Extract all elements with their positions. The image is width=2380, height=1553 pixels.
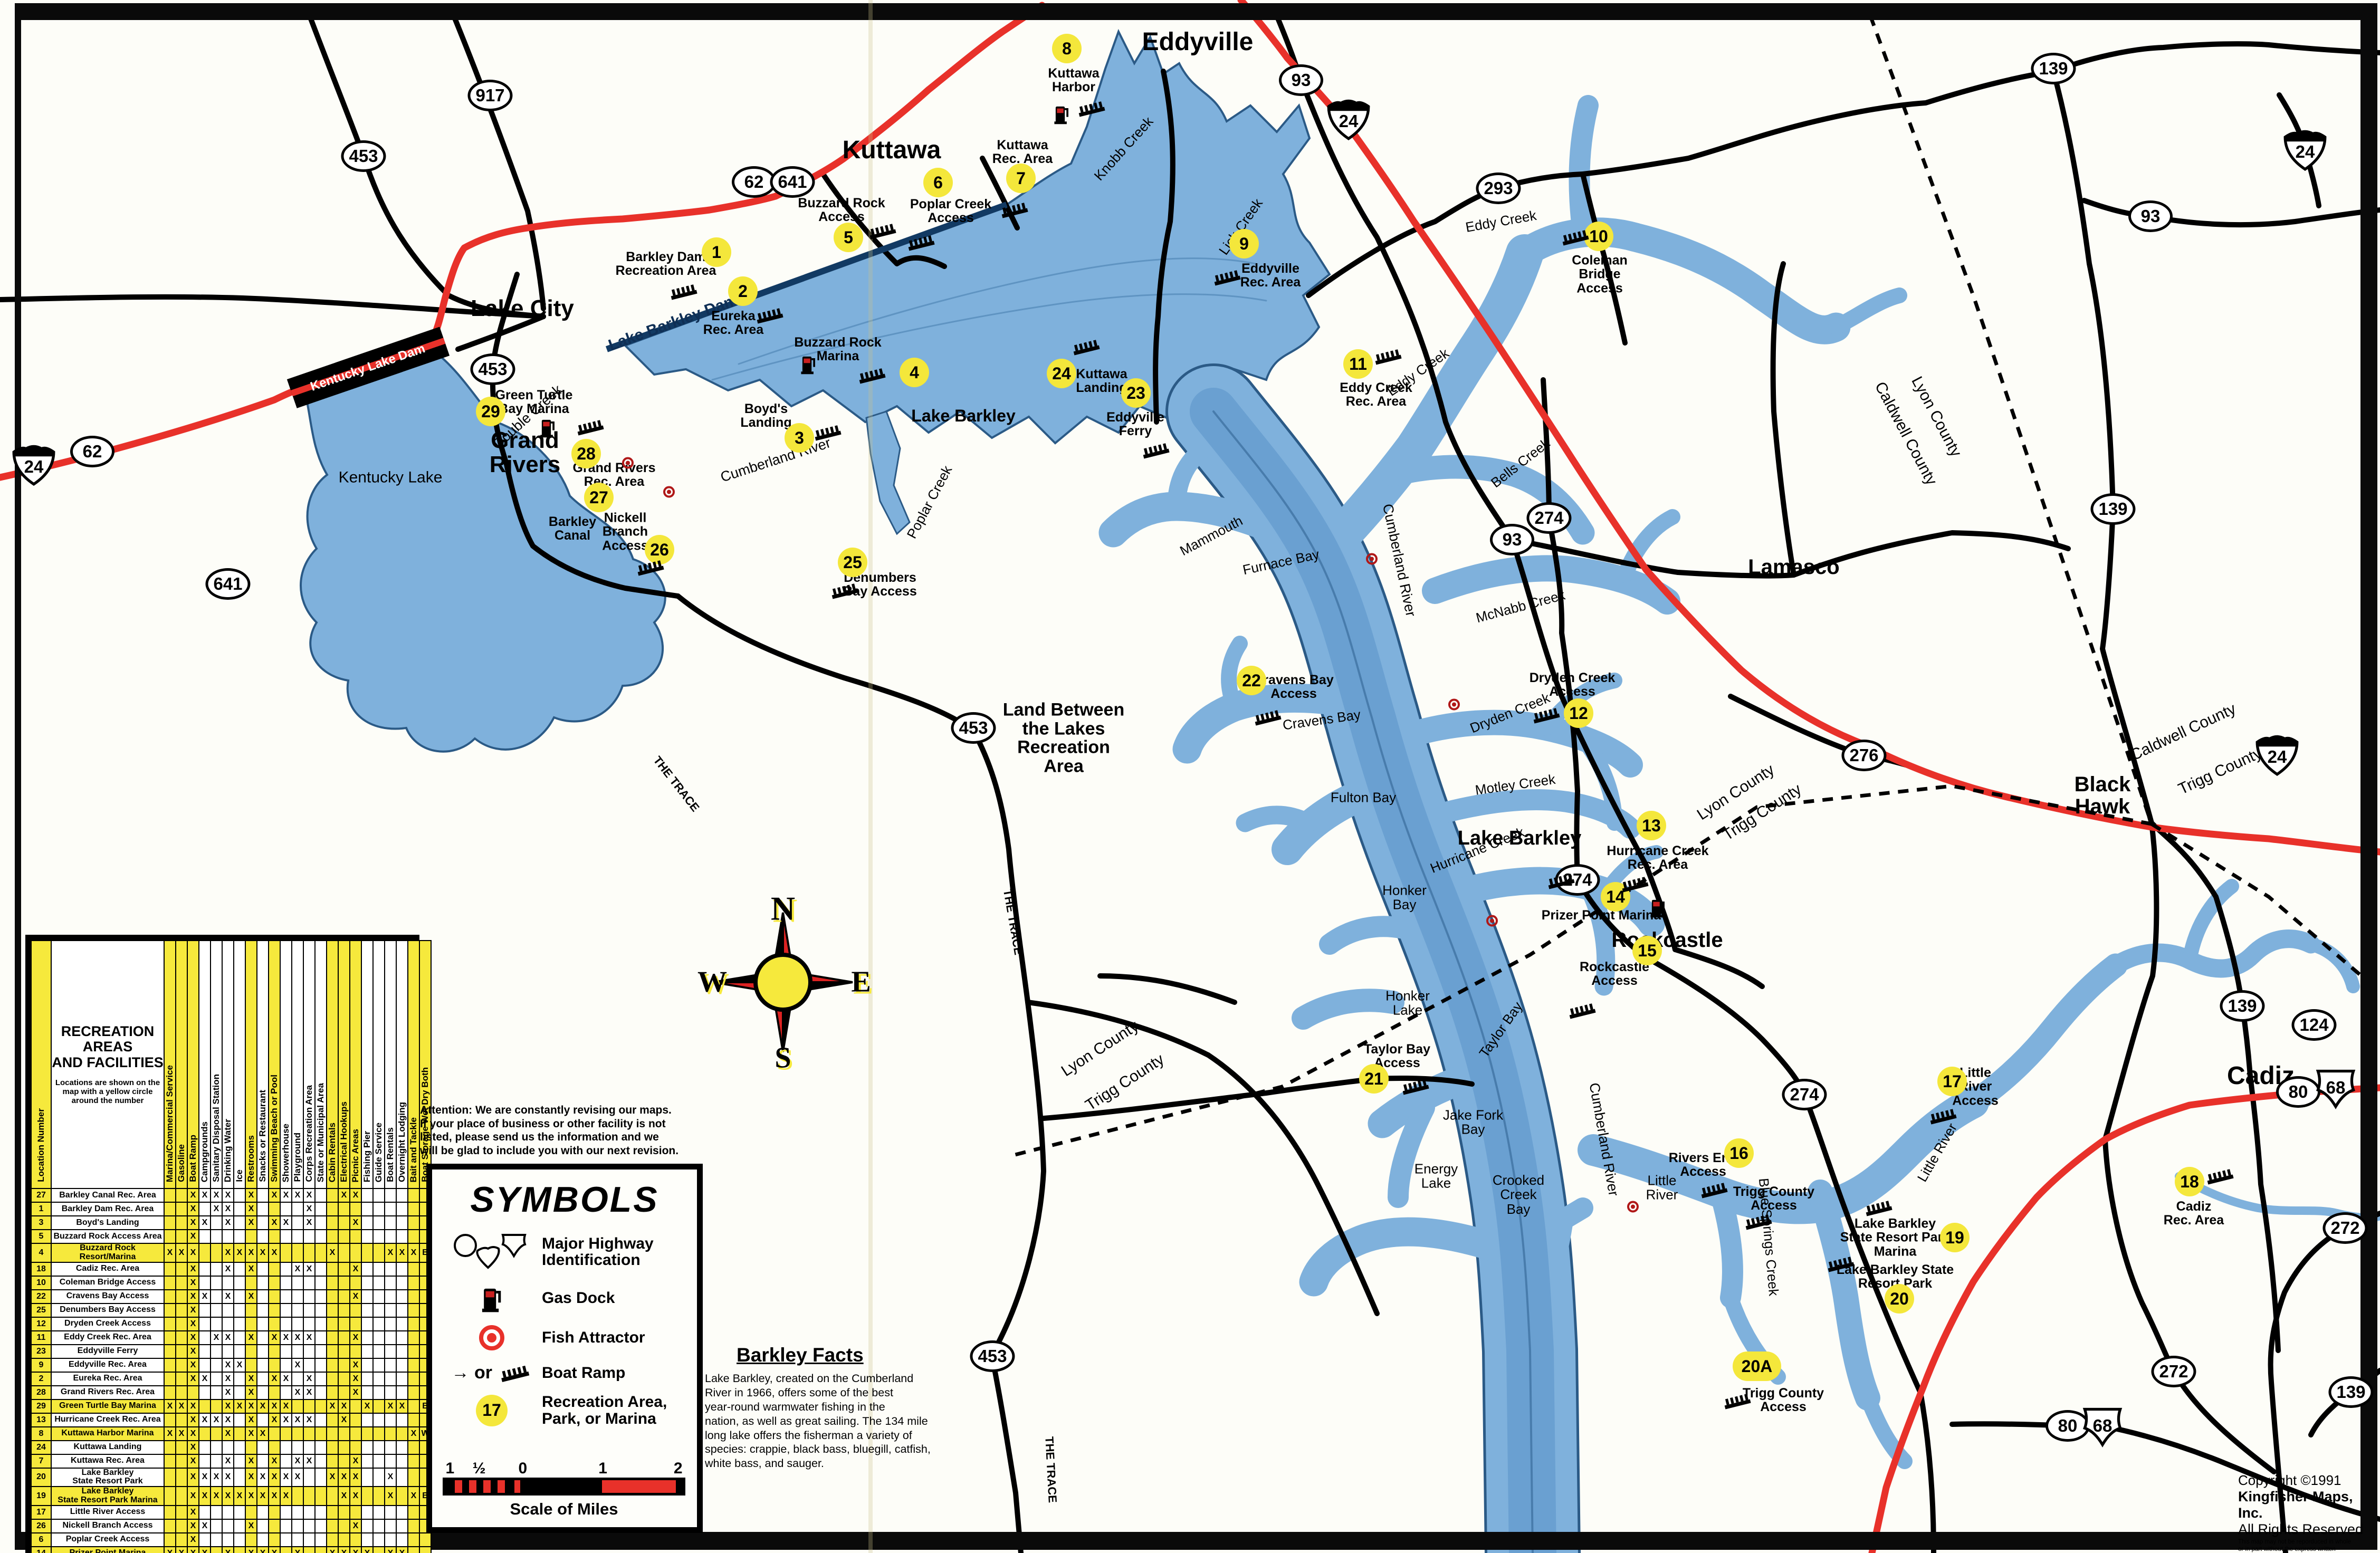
facility-mark bbox=[234, 1547, 245, 1553]
facility-mark bbox=[292, 1487, 303, 1506]
facility-mark bbox=[350, 1441, 361, 1454]
facility-mark bbox=[292, 1202, 303, 1216]
facility-mark: X bbox=[269, 1468, 280, 1487]
facility-mark bbox=[373, 1243, 385, 1262]
facility-mark bbox=[396, 1358, 408, 1372]
facility-mark bbox=[419, 1533, 431, 1547]
facility-mark bbox=[257, 1262, 269, 1276]
column-header: Marina/Commercial Service bbox=[164, 941, 176, 1188]
facility-mark bbox=[280, 1519, 292, 1533]
rec-area-marker-29: 29 bbox=[476, 397, 505, 426]
table-row: 7Kuttawa Rec. AreaXXXXXXX bbox=[31, 1454, 431, 1468]
facility-mark: X bbox=[211, 1188, 222, 1202]
facility-mark bbox=[396, 1386, 408, 1399]
road-shield-139: 139 bbox=[2090, 493, 2135, 525]
facility-mark: X bbox=[187, 1243, 199, 1262]
table-title: RECREATION AREAS AND FACILITIES bbox=[52, 1024, 164, 1071]
road-shield-272: 272 bbox=[2322, 1212, 2367, 1244]
facility-mark bbox=[257, 1413, 269, 1427]
facility-mark: X bbox=[164, 1243, 176, 1262]
copyright-line: Kingfisher Maps, Inc. bbox=[2238, 1489, 2380, 1521]
facility-mark: X bbox=[327, 1243, 338, 1262]
facility-mark bbox=[280, 1317, 292, 1331]
facility-mark: X bbox=[350, 1487, 361, 1506]
facility-mark bbox=[408, 1331, 419, 1345]
facility-mark bbox=[408, 1454, 419, 1468]
facility-mark bbox=[408, 1317, 419, 1331]
facility-mark bbox=[257, 1533, 269, 1547]
facility-mark: X bbox=[199, 1372, 211, 1386]
facility-mark bbox=[327, 1230, 338, 1243]
facility-mark bbox=[164, 1188, 176, 1202]
facility-mark: X bbox=[280, 1468, 292, 1487]
facility-mark bbox=[327, 1441, 338, 1454]
facility-mark: X bbox=[187, 1262, 199, 1276]
facility-mark bbox=[234, 1506, 245, 1519]
location-name: Barkley Dam Rec. Area bbox=[51, 1202, 164, 1216]
facility-mark: X bbox=[187, 1230, 199, 1243]
facility-mark bbox=[199, 1533, 211, 1547]
facility-mark bbox=[361, 1454, 373, 1468]
map-label: Rockcastle Access bbox=[1580, 960, 1649, 988]
facility-mark bbox=[234, 1216, 245, 1230]
facility-mark bbox=[292, 1519, 303, 1533]
facility-mark: X bbox=[222, 1454, 234, 1468]
facility-mark: X bbox=[187, 1290, 199, 1303]
facility-mark bbox=[315, 1413, 327, 1427]
column-header: Sanitary Disposal Station bbox=[211, 941, 222, 1188]
facility-mark: X bbox=[199, 1188, 211, 1202]
boat-ramp-icon bbox=[753, 306, 786, 328]
facility-mark: X bbox=[222, 1262, 234, 1276]
gas-dock-icon bbox=[800, 353, 816, 378]
facility-mark bbox=[280, 1276, 292, 1290]
boat-ramp-icon bbox=[1251, 708, 1284, 730]
facility-mark bbox=[234, 1317, 245, 1331]
facility-mark bbox=[315, 1519, 327, 1533]
location-number: 26 bbox=[31, 1519, 51, 1533]
facility-mark bbox=[164, 1276, 176, 1290]
facility-mark bbox=[280, 1454, 292, 1468]
facility-mark bbox=[164, 1331, 176, 1345]
table-row: 10Coleman Bridge AccessX bbox=[31, 1276, 431, 1290]
facility-mark bbox=[373, 1188, 385, 1202]
road-shield-139: 139 bbox=[2031, 53, 2076, 84]
facility-mark: X bbox=[199, 1216, 211, 1230]
facility-mark bbox=[199, 1276, 211, 1290]
facility-mark bbox=[408, 1547, 419, 1553]
location-name: Green Turtle Bay Marina bbox=[51, 1399, 164, 1413]
facility-mark: X bbox=[280, 1487, 292, 1506]
location-number: 18 bbox=[31, 1262, 51, 1276]
facility-mark: X bbox=[338, 1468, 350, 1487]
facility-mark bbox=[222, 1441, 234, 1454]
column-header: Guide Service bbox=[373, 941, 385, 1188]
facility-mark bbox=[361, 1262, 373, 1276]
facility-mark bbox=[373, 1533, 385, 1547]
facility-mark bbox=[361, 1276, 373, 1290]
facility-mark bbox=[396, 1345, 408, 1358]
facility-mark bbox=[327, 1276, 338, 1290]
facility-mark: X bbox=[245, 1372, 257, 1386]
facility-mark bbox=[327, 1188, 338, 1202]
rec-area-marker-icon: 17 bbox=[442, 1395, 542, 1426]
facility-mark bbox=[211, 1345, 222, 1358]
table-row: 25Denumbers Bay AccessX bbox=[31, 1303, 431, 1317]
table-row: 9Eddyville Rec. AreaXXXXX bbox=[31, 1358, 431, 1372]
facilities-table: Location NumberRECREATION AREAS AND FACI… bbox=[25, 935, 419, 1553]
facility-mark bbox=[245, 1533, 257, 1547]
facility-mark bbox=[361, 1202, 373, 1216]
column-header: Showerhouse bbox=[280, 941, 292, 1188]
boat-ramp-icon bbox=[1618, 875, 1651, 896]
facility-mark bbox=[396, 1216, 408, 1230]
facility-mark bbox=[396, 1441, 408, 1454]
facility-mark: X bbox=[292, 1413, 303, 1427]
facility-mark bbox=[385, 1372, 396, 1386]
facility-mark bbox=[350, 1230, 361, 1243]
boat-ramp-icon bbox=[1210, 268, 1243, 290]
facility-mark: X bbox=[269, 1331, 280, 1345]
facility-mark bbox=[385, 1331, 396, 1345]
facility-mark bbox=[280, 1290, 292, 1303]
facility-mark bbox=[234, 1345, 245, 1358]
facility-mark: X bbox=[269, 1547, 280, 1553]
location-name: Coleman Bridge Access bbox=[51, 1276, 164, 1290]
location-name: Cadiz Rec. Area bbox=[51, 1262, 164, 1276]
rec-area-marker-8: 8 bbox=[1052, 34, 1082, 63]
facility-mark bbox=[385, 1358, 396, 1372]
map-label: Hurricane Creek Rec. Area bbox=[1607, 844, 1708, 872]
facility-mark bbox=[164, 1345, 176, 1358]
facility-mark bbox=[408, 1216, 419, 1230]
location-name: Buzzard Rock Access Area bbox=[51, 1230, 164, 1243]
facility-mark bbox=[315, 1290, 327, 1303]
table-row: 14Prizer Point MarinaXXXXXXXXXXXXXXX bbox=[31, 1547, 431, 1553]
facility-mark: X bbox=[245, 1386, 257, 1399]
facility-mark bbox=[419, 1547, 431, 1553]
facility-mark bbox=[211, 1506, 222, 1519]
facility-mark: X bbox=[245, 1331, 257, 1345]
facility-mark bbox=[315, 1345, 327, 1358]
road-shield-124: 124 bbox=[2291, 1009, 2336, 1041]
facility-mark bbox=[338, 1202, 350, 1216]
facility-mark bbox=[257, 1230, 269, 1243]
facility-mark bbox=[315, 1303, 327, 1317]
column-header: Corps Recreation Area bbox=[303, 941, 315, 1188]
facility-mark: X bbox=[269, 1216, 280, 1230]
road-shield-453: 453 bbox=[341, 140, 386, 172]
facility-mark bbox=[257, 1454, 269, 1468]
facility-mark bbox=[303, 1230, 315, 1243]
facility-mark bbox=[350, 1317, 361, 1331]
facility-mark: X bbox=[303, 1202, 315, 1216]
facility-mark: X bbox=[396, 1547, 408, 1553]
facility-mark bbox=[303, 1533, 315, 1547]
map-label: Dryden Creek Access bbox=[1530, 671, 1616, 699]
facility-mark bbox=[315, 1468, 327, 1487]
location-number: 6 bbox=[31, 1533, 51, 1547]
facility-mark bbox=[327, 1519, 338, 1533]
column-header: Overnight Lodging bbox=[396, 941, 408, 1188]
facility-mark bbox=[327, 1506, 338, 1519]
rec-area-marker-1: 1 bbox=[702, 237, 731, 267]
map-label: Eddyville bbox=[1142, 29, 1254, 55]
facility-mark: X bbox=[222, 1399, 234, 1413]
facility-mark bbox=[280, 1345, 292, 1358]
facility-mark bbox=[211, 1243, 222, 1262]
boat-ramp-icon bbox=[1926, 1107, 1959, 1128]
facility-mark bbox=[385, 1276, 396, 1290]
road-shield-274: 274 bbox=[1782, 1079, 1827, 1110]
facility-mark: X bbox=[350, 1262, 361, 1276]
facility-mark bbox=[280, 1230, 292, 1243]
facility-mark: X bbox=[187, 1533, 199, 1547]
facility-mark bbox=[338, 1441, 350, 1454]
facility-mark: X bbox=[164, 1547, 176, 1553]
facility-mark bbox=[396, 1317, 408, 1331]
column-header: Boat Rentals bbox=[385, 941, 396, 1188]
table-row: 17Little River AccessX bbox=[31, 1506, 431, 1519]
facility-mark: X bbox=[385, 1468, 396, 1487]
facility-mark: X bbox=[245, 1413, 257, 1427]
shield-number: 68 bbox=[2326, 1078, 2346, 1098]
table-title-cell: RECREATION AREAS AND FACILITIESLocations… bbox=[51, 941, 164, 1188]
facility-mark: X bbox=[176, 1243, 187, 1262]
facility-mark: X bbox=[361, 1399, 373, 1413]
facility-mark bbox=[176, 1345, 187, 1358]
facility-mark: X bbox=[187, 1188, 199, 1202]
facility-mark: X bbox=[292, 1547, 303, 1553]
map-label: Trigg County Access bbox=[1733, 1185, 1814, 1213]
boat-ramp-icon bbox=[1862, 1199, 1895, 1220]
facility-mark: X bbox=[303, 1372, 315, 1386]
facility-mark: X bbox=[222, 1243, 234, 1262]
facility-mark bbox=[396, 1303, 408, 1317]
location-number: 27 bbox=[31, 1188, 51, 1202]
road-shield-62: 62 bbox=[732, 166, 776, 198]
facility-mark: X bbox=[327, 1399, 338, 1413]
facility-mark bbox=[315, 1399, 327, 1413]
facility-mark: X bbox=[187, 1547, 199, 1553]
facility-mark bbox=[385, 1317, 396, 1331]
facility-mark: X bbox=[187, 1487, 199, 1506]
facility-mark: X bbox=[350, 1468, 361, 1487]
rec-area-marker-24: 24 bbox=[1047, 359, 1076, 388]
facility-mark: X bbox=[280, 1188, 292, 1202]
map-label: Barkley Dam Recreation Area bbox=[616, 250, 716, 278]
facility-mark bbox=[361, 1487, 373, 1506]
boat-ramp-icon bbox=[1139, 441, 1172, 463]
facility-mark: X bbox=[187, 1519, 199, 1533]
facility-mark: X bbox=[245, 1262, 257, 1276]
facility-mark bbox=[257, 1276, 269, 1290]
rec-area-marker-7: 7 bbox=[1006, 164, 1036, 193]
map-label: Fulton Bay bbox=[1331, 790, 1396, 804]
facility-mark bbox=[361, 1216, 373, 1230]
facility-mark bbox=[327, 1358, 338, 1372]
boat-ramp-icon bbox=[1742, 1212, 1774, 1234]
location-number: 10 bbox=[31, 1276, 51, 1290]
location-name: Eureka Rec. Area bbox=[51, 1372, 164, 1386]
highway-id-icon bbox=[442, 1231, 542, 1273]
rec-area-marker-3: 3 bbox=[785, 423, 814, 453]
facility-mark bbox=[385, 1188, 396, 1202]
facility-mark bbox=[211, 1262, 222, 1276]
facility-mark bbox=[350, 1243, 361, 1262]
boat-ramp-icon bbox=[855, 366, 888, 388]
facility-mark bbox=[385, 1262, 396, 1276]
facility-mark bbox=[292, 1303, 303, 1317]
facility-mark bbox=[338, 1216, 350, 1230]
facility-mark: X bbox=[385, 1399, 396, 1413]
scale-of-miles: 1 ½ 0 1 2 Scale of Miles bbox=[443, 1460, 685, 1519]
location-name: Nickell Branch Access bbox=[51, 1519, 164, 1533]
facility-mark bbox=[292, 1243, 303, 1262]
facility-mark bbox=[164, 1303, 176, 1317]
location-number: 12 bbox=[31, 1317, 51, 1331]
facility-mark: X bbox=[408, 1427, 419, 1441]
rec-area-marker-18: 18 bbox=[2175, 1167, 2204, 1196]
facility-mark bbox=[327, 1317, 338, 1331]
facility-mark bbox=[408, 1262, 419, 1276]
column-header: Cabin Rentals bbox=[327, 941, 338, 1188]
facility-mark bbox=[396, 1372, 408, 1386]
facility-mark: X bbox=[303, 1454, 315, 1468]
facility-mark: X bbox=[408, 1243, 419, 1262]
facility-mark bbox=[257, 1345, 269, 1358]
facility-mark: X bbox=[303, 1413, 315, 1427]
shield-number: 24 bbox=[1339, 111, 1359, 131]
location-number: 20 bbox=[31, 1468, 51, 1487]
facility-mark: X bbox=[338, 1547, 350, 1553]
road-shield-139: 139 bbox=[2220, 990, 2264, 1022]
facility-mark bbox=[280, 1358, 292, 1372]
facility-mark bbox=[361, 1230, 373, 1243]
facility-mark bbox=[361, 1386, 373, 1399]
boat-ramp-icon bbox=[2203, 1167, 2236, 1188]
location-number: 8 bbox=[31, 1427, 51, 1441]
facility-mark: X bbox=[222, 1386, 234, 1399]
facility-mark bbox=[408, 1399, 419, 1413]
facility-mark bbox=[222, 1230, 234, 1243]
facility-mark bbox=[199, 1441, 211, 1454]
facility-mark bbox=[234, 1262, 245, 1276]
facility-mark: X bbox=[269, 1413, 280, 1427]
facility-mark bbox=[315, 1243, 327, 1262]
facility-mark bbox=[234, 1230, 245, 1243]
column-header: Restrooms bbox=[245, 941, 257, 1188]
rec-area-marker-22: 22 bbox=[1237, 666, 1266, 695]
facility-mark bbox=[327, 1454, 338, 1468]
facility-mark bbox=[338, 1303, 350, 1317]
legend-ramp-label: Boat Ramp bbox=[542, 1365, 625, 1382]
facility-mark bbox=[327, 1290, 338, 1303]
legend-fish-label: Fish Attractor bbox=[542, 1329, 645, 1346]
legend-gas-label: Gas Dock bbox=[542, 1290, 615, 1307]
copyright-line: All Rights Reserved bbox=[2238, 1521, 2380, 1538]
facility-mark bbox=[327, 1386, 338, 1399]
facility-mark bbox=[338, 1345, 350, 1358]
facility-mark bbox=[338, 1427, 350, 1441]
location-name: Lake Barkley State Resort Park Marina bbox=[51, 1487, 164, 1506]
map-label: S bbox=[775, 1043, 791, 1074]
facility-mark bbox=[211, 1216, 222, 1230]
facility-mark bbox=[176, 1413, 187, 1427]
symbols-legend: SYMBOLS Major Highway Identification bbox=[426, 1164, 703, 1533]
facility-mark bbox=[350, 1345, 361, 1358]
boat-ramp-icon bbox=[998, 200, 1030, 222]
facility-mark bbox=[280, 1427, 292, 1441]
map-label: Eddyville Ferry bbox=[1106, 410, 1164, 438]
facility-mark bbox=[338, 1317, 350, 1331]
facility-mark: X bbox=[257, 1243, 269, 1262]
facility-mark bbox=[222, 1519, 234, 1533]
facility-mark: X bbox=[303, 1262, 315, 1276]
location-name: Grand Rivers Rec. Area bbox=[51, 1386, 164, 1399]
table-row: 20Lake Barkley State Resort ParkXXXXXXXX… bbox=[31, 1468, 431, 1487]
facility-mark bbox=[327, 1216, 338, 1230]
facility-mark bbox=[211, 1399, 222, 1413]
facility-mark: X bbox=[187, 1399, 199, 1413]
facility-mark: X bbox=[257, 1487, 269, 1506]
location-name: Little River Access bbox=[51, 1506, 164, 1519]
facility-mark bbox=[315, 1230, 327, 1243]
map-label: Poplar Creek Access bbox=[910, 197, 991, 225]
facility-mark bbox=[361, 1290, 373, 1303]
facility-mark bbox=[269, 1519, 280, 1533]
facility-mark bbox=[164, 1216, 176, 1230]
table-row: 3Boyd's LandingXXXXXXXX bbox=[31, 1216, 431, 1230]
facility-mark bbox=[373, 1290, 385, 1303]
facility-mark: X bbox=[245, 1487, 257, 1506]
barkley-facts: Barkley Facts Lake Barkley, created on t… bbox=[705, 1344, 942, 1471]
road-shield-293: 293 bbox=[1476, 172, 1521, 204]
fish-attractor-icon bbox=[662, 485, 676, 502]
facility-mark bbox=[164, 1506, 176, 1519]
facility-mark bbox=[303, 1243, 315, 1262]
facility-mark bbox=[385, 1290, 396, 1303]
facility-mark bbox=[199, 1506, 211, 1519]
location-number: 23 bbox=[31, 1345, 51, 1358]
facility-mark bbox=[176, 1216, 187, 1230]
facility-mark bbox=[164, 1468, 176, 1487]
facility-mark bbox=[199, 1386, 211, 1399]
facility-mark: X bbox=[187, 1468, 199, 1487]
facility-mark bbox=[269, 1230, 280, 1243]
location-name: Prizer Point Marina bbox=[51, 1547, 164, 1553]
gas-dock-icon bbox=[1650, 896, 1666, 921]
facility-mark bbox=[234, 1519, 245, 1533]
facility-mark bbox=[292, 1506, 303, 1519]
facility-mark bbox=[176, 1386, 187, 1399]
facility-mark bbox=[211, 1519, 222, 1533]
facility-mark bbox=[303, 1441, 315, 1454]
facility-mark bbox=[396, 1262, 408, 1276]
fish-attractor-icon bbox=[1485, 914, 1499, 931]
table-row: 22Cravens Bay AccessXXXXX bbox=[31, 1290, 431, 1303]
facility-mark bbox=[176, 1533, 187, 1547]
facility-mark: X bbox=[187, 1331, 199, 1345]
copyright-line: Copyright ©1991 bbox=[2238, 1473, 2380, 1489]
facility-mark bbox=[315, 1262, 327, 1276]
facility-mark bbox=[338, 1519, 350, 1533]
location-name: Poplar Creek Access bbox=[51, 1533, 164, 1547]
facility-mark bbox=[373, 1262, 385, 1276]
facility-mark bbox=[257, 1216, 269, 1230]
facility-mark bbox=[245, 1506, 257, 1519]
facility-mark: X bbox=[257, 1427, 269, 1441]
